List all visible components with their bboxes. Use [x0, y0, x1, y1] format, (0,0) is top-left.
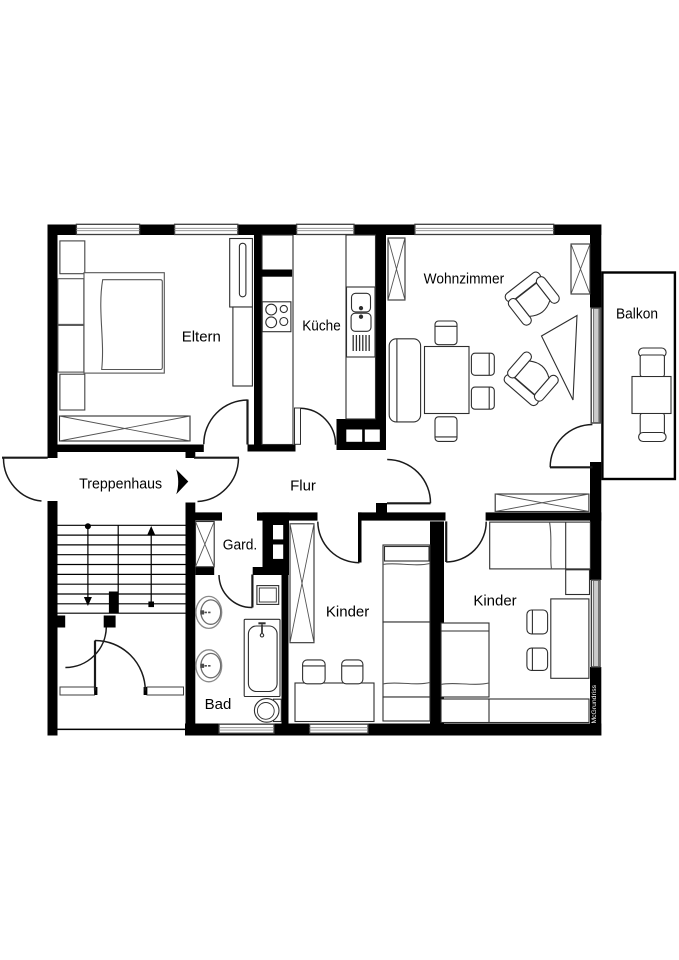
svg-text:Kinder: Kinder	[326, 604, 369, 621]
svg-text:Gard.: Gard.	[223, 537, 258, 554]
svg-text:Bad: Bad	[205, 696, 232, 713]
svg-text:Küche: Küche	[302, 318, 341, 335]
svg-text:Eltern: Eltern	[182, 328, 221, 345]
svg-text:Kinder: Kinder	[473, 593, 516, 610]
svg-text:Flur: Flur	[290, 478, 316, 495]
svg-text:McGrundriss: McGrundriss	[591, 684, 598, 723]
svg-text:Treppenhaus: Treppenhaus	[79, 475, 162, 492]
svg-text:Wohnzimmer: Wohnzimmer	[424, 270, 505, 287]
svg-text:Balkon: Balkon	[616, 306, 658, 323]
